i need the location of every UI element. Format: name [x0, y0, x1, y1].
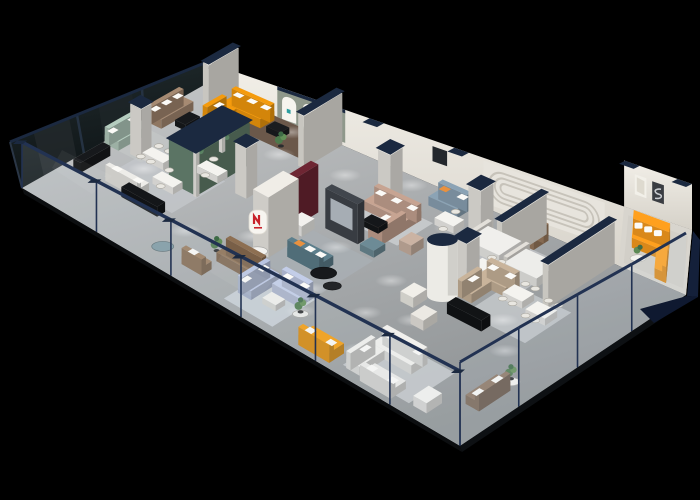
- downlight-glow: [487, 314, 519, 327]
- chair: [201, 173, 210, 178]
- chair: [451, 209, 460, 214]
- art-frame-arch: [635, 174, 647, 198]
- pillow: [644, 226, 652, 232]
- brand-logo-red: [249, 210, 267, 234]
- chair: [544, 298, 553, 303]
- chair: [498, 296, 507, 301]
- pillow: [654, 230, 662, 236]
- chair: [531, 286, 540, 291]
- chair: [521, 313, 530, 318]
- downlight-glow: [263, 148, 295, 161]
- floorplan-render: [0, 0, 700, 500]
- pillow: [635, 223, 643, 229]
- scene-svg: [0, 0, 700, 500]
- chair: [209, 157, 218, 162]
- downlight-glow: [329, 169, 361, 182]
- chair: [154, 144, 163, 149]
- chair: [508, 301, 517, 306]
- chair: [521, 282, 530, 287]
- chair: [165, 168, 174, 173]
- coffee-table-round-black-b: [323, 282, 341, 290]
- cylinder-column: [427, 233, 458, 302]
- downlight-glow: [375, 274, 407, 287]
- chair: [439, 227, 448, 232]
- chair: [136, 154, 145, 159]
- chair: [156, 184, 165, 189]
- chair: [146, 159, 155, 164]
- coffee-table-round-black-a: [311, 267, 337, 279]
